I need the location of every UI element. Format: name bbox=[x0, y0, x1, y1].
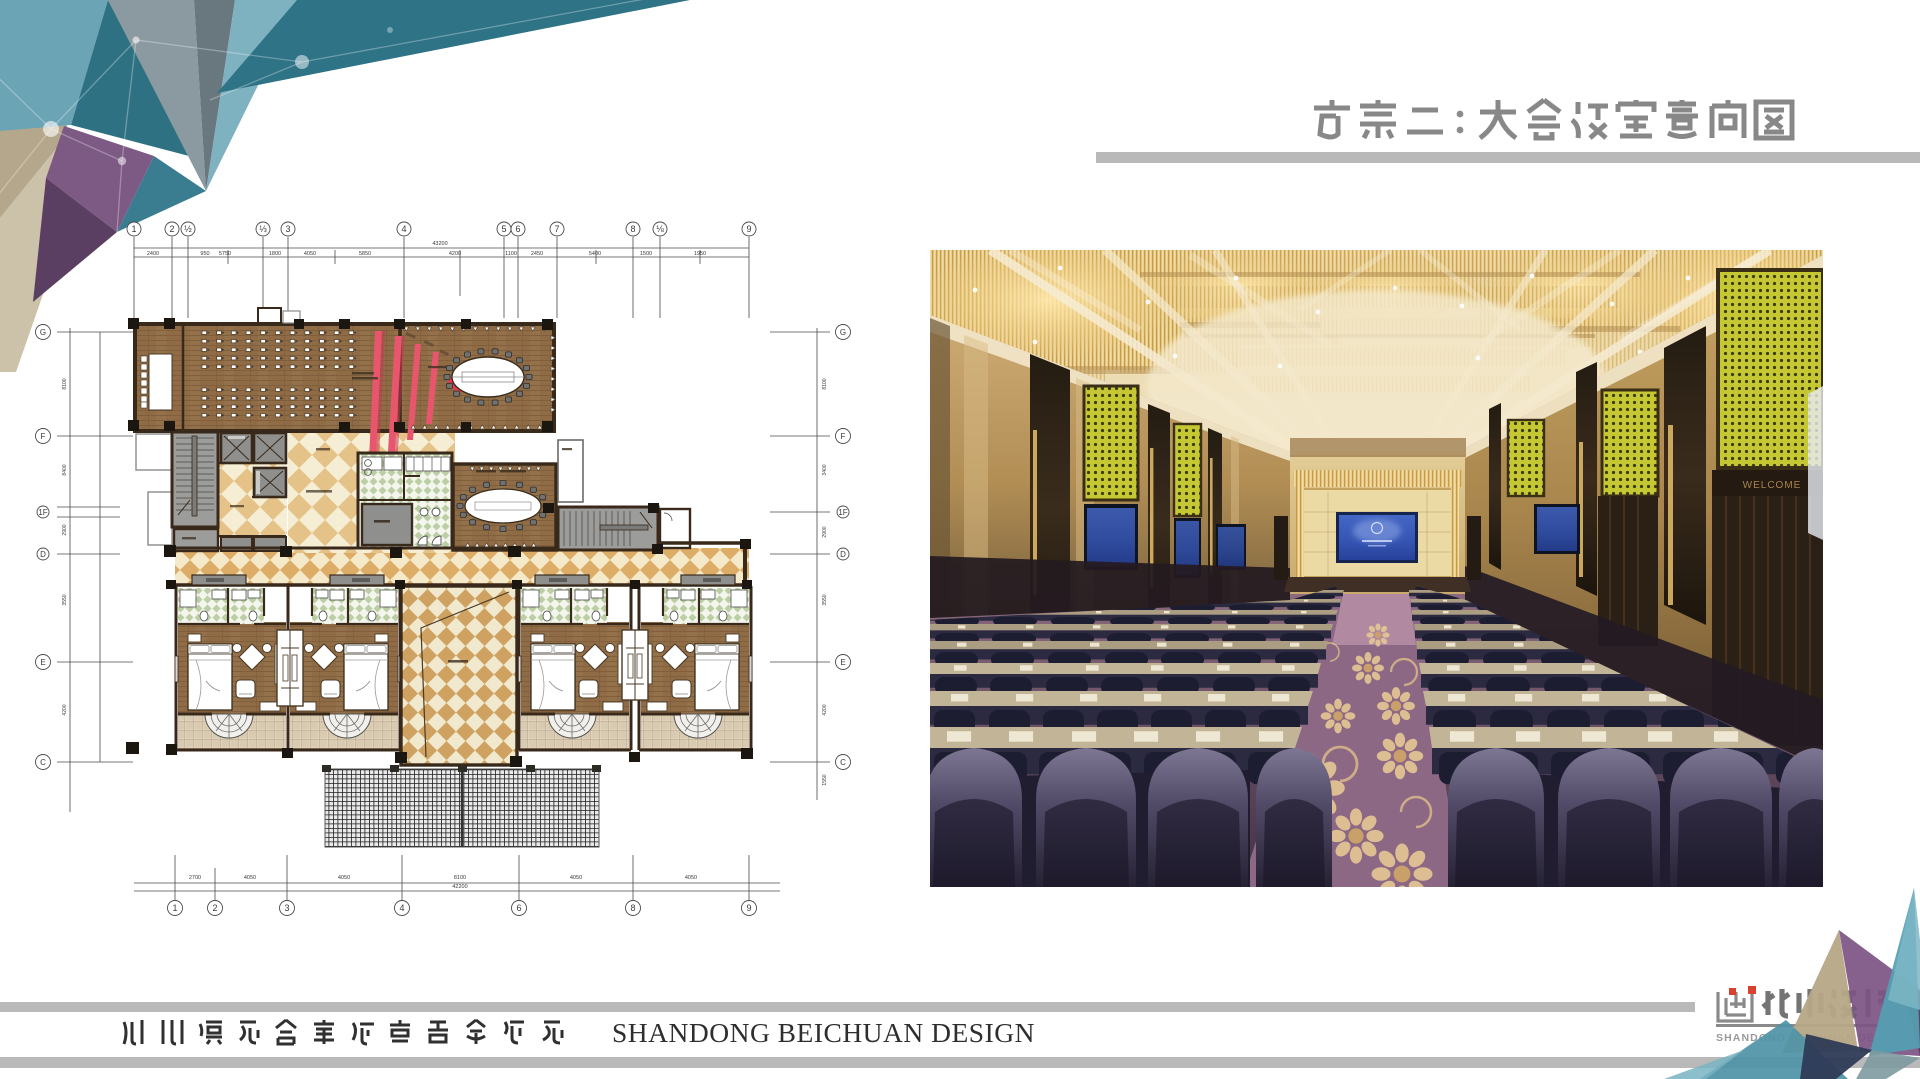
svg-text:42200: 42200 bbox=[452, 884, 467, 890]
svg-text:1100: 1100 bbox=[505, 251, 517, 257]
svg-text:9: 9 bbox=[746, 903, 751, 913]
svg-text:⅛: ⅛ bbox=[656, 224, 664, 234]
svg-text:1950: 1950 bbox=[694, 251, 706, 257]
svg-text:4200: 4200 bbox=[62, 704, 68, 715]
svg-text:F: F bbox=[841, 432, 846, 441]
svg-text:C: C bbox=[840, 758, 846, 767]
svg-text:1: 1 bbox=[131, 224, 136, 234]
svg-text:2400: 2400 bbox=[147, 251, 159, 257]
svg-text:E: E bbox=[40, 658, 45, 667]
svg-text:4050: 4050 bbox=[570, 875, 582, 881]
svg-text:G: G bbox=[40, 328, 46, 337]
svg-text:4050: 4050 bbox=[685, 875, 697, 881]
svg-text:2900: 2900 bbox=[62, 524, 68, 535]
svg-text:8100: 8100 bbox=[62, 378, 68, 389]
svg-text:4: 4 bbox=[401, 224, 406, 234]
svg-text:9: 9 bbox=[746, 224, 751, 234]
svg-text:1550: 1550 bbox=[822, 774, 828, 785]
svg-text:2700: 2700 bbox=[189, 875, 201, 881]
svg-text:1500: 1500 bbox=[640, 251, 652, 257]
svg-text:2450: 2450 bbox=[531, 251, 543, 257]
svg-text:⅓: ⅓ bbox=[259, 224, 267, 234]
svg-text:2: 2 bbox=[169, 224, 174, 234]
svg-text:3: 3 bbox=[284, 903, 289, 913]
svg-text:G: G bbox=[840, 328, 846, 337]
svg-text:5400: 5400 bbox=[589, 251, 601, 257]
svg-text:D: D bbox=[840, 550, 846, 559]
svg-text:1800: 1800 bbox=[269, 251, 281, 257]
svg-text:8: 8 bbox=[630, 224, 635, 234]
svg-text:4050: 4050 bbox=[338, 875, 350, 881]
svg-text:950: 950 bbox=[200, 251, 209, 257]
svg-text:8100: 8100 bbox=[454, 875, 466, 881]
svg-text:7: 7 bbox=[554, 224, 559, 234]
svg-text:4: 4 bbox=[399, 903, 404, 913]
svg-text:4200: 4200 bbox=[822, 704, 828, 715]
svg-text:F: F bbox=[41, 432, 46, 441]
svg-text:5: 5 bbox=[501, 224, 506, 234]
svg-text:4200: 4200 bbox=[449, 251, 461, 257]
svg-text:6: 6 bbox=[515, 224, 520, 234]
svg-text:2900: 2900 bbox=[822, 526, 828, 537]
svg-text:4050: 4050 bbox=[244, 875, 256, 881]
svg-text:3: 3 bbox=[285, 224, 290, 234]
svg-text:1F: 1F bbox=[38, 508, 47, 517]
svg-text:4050: 4050 bbox=[304, 251, 316, 257]
svg-text:8100: 8100 bbox=[822, 378, 828, 389]
svg-text:8400: 8400 bbox=[62, 464, 68, 475]
svg-text:8: 8 bbox=[630, 903, 635, 913]
svg-text:2: 2 bbox=[212, 903, 217, 913]
svg-text:E: E bbox=[840, 658, 845, 667]
svg-text:3400: 3400 bbox=[822, 464, 828, 475]
svg-text:1F: 1F bbox=[838, 508, 847, 517]
svg-text:WELCOME: WELCOME bbox=[1743, 480, 1802, 491]
svg-text:3550: 3550 bbox=[62, 594, 68, 605]
svg-text:D: D bbox=[40, 550, 46, 559]
svg-text:1: 1 bbox=[172, 903, 177, 913]
svg-text:5850: 5850 bbox=[359, 251, 371, 257]
svg-text:3550: 3550 bbox=[822, 594, 828, 605]
svg-text:SHANDONG BEICHUAN DESIGN: SHANDONG BEICHUAN DESIGN bbox=[612, 1017, 1035, 1048]
svg-text:6: 6 bbox=[516, 903, 521, 913]
svg-text:43200: 43200 bbox=[432, 241, 447, 247]
svg-text:5750: 5750 bbox=[219, 251, 231, 257]
svg-text:C: C bbox=[40, 758, 46, 767]
svg-text:½: ½ bbox=[184, 224, 192, 234]
